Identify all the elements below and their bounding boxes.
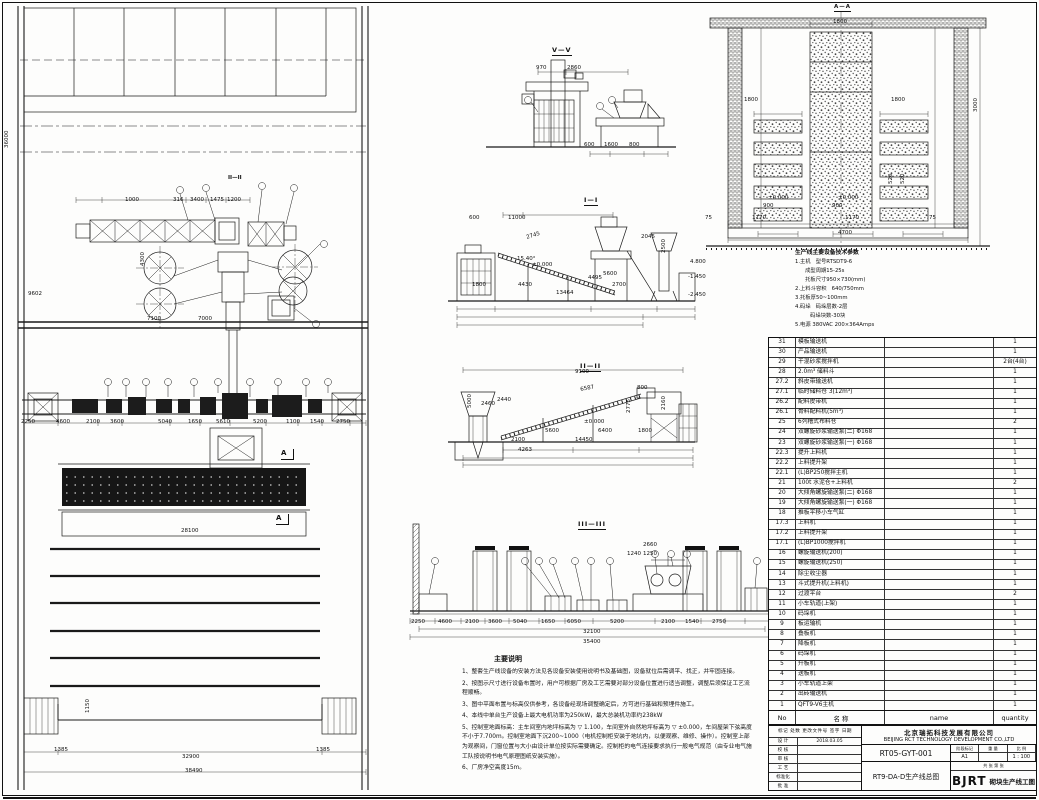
dim-label: 75 bbox=[929, 216, 936, 222]
revision-row: 审 核 bbox=[769, 755, 861, 764]
part-name: 双螺旋砂浆输送泵(一) Φ168 bbox=[796, 439, 885, 448]
part-qty: 1 bbox=[994, 671, 1036, 680]
dim-label: 6050 bbox=[567, 620, 581, 626]
dim-label: 520 bbox=[889, 174, 895, 185]
part-qty: 1 bbox=[994, 560, 1036, 569]
part-qty: 1 bbox=[994, 368, 1036, 377]
part-spec bbox=[885, 691, 994, 700]
part-no: 13 bbox=[769, 580, 796, 589]
dim-label: 900 bbox=[763, 204, 774, 210]
tech-param-line: 2.上料斗容积 640/750mm bbox=[795, 285, 945, 294]
part-no: 22.3 bbox=[769, 449, 796, 458]
part-no: 18 bbox=[769, 509, 796, 518]
part-name: 斗式提升机(上料机) bbox=[796, 580, 885, 589]
part-spec bbox=[885, 640, 994, 649]
part-qty: 1 bbox=[994, 509, 1036, 518]
part-spec bbox=[885, 348, 994, 357]
dim-label: 1385 bbox=[316, 748, 330, 754]
dim-label: 4495 bbox=[588, 276, 602, 282]
part-spec bbox=[885, 399, 994, 408]
table-row: 22.3 提升上料机 1 bbox=[769, 448, 1036, 458]
scale-label: 比 例 bbox=[1008, 745, 1036, 753]
dim-label: 2100 bbox=[86, 420, 100, 426]
table-row: 26.1 骨料配料机(5m³) 1 bbox=[769, 408, 1036, 418]
part-spec bbox=[885, 560, 994, 569]
part-name: 6列槽式布料仓 bbox=[796, 419, 885, 428]
dim-label: 3600 bbox=[110, 420, 124, 426]
dim-label: 2660 bbox=[643, 543, 657, 549]
table-row: 2 出砖输送机 1 bbox=[769, 690, 1036, 700]
table-row: 24 双螺旋砂浆输送泵(二) Φ168 1 bbox=[769, 428, 1036, 438]
part-name: 干混砂浆搅拌机 bbox=[796, 358, 885, 367]
table-row: 9 板运输机 1 bbox=[769, 619, 1036, 629]
tech-param-line: 成型周期15-25s bbox=[795, 267, 945, 276]
part-spec bbox=[885, 469, 994, 478]
part-name: 过渡平台 bbox=[796, 590, 885, 599]
part-no: 26.2 bbox=[769, 399, 796, 408]
dim-label: 14450 bbox=[575, 438, 593, 444]
part-qty: 1 bbox=[994, 530, 1036, 539]
dim-label: 1650 bbox=[188, 420, 202, 426]
section-title-i: I—I bbox=[584, 196, 598, 206]
engineering-drawing-sheet: { "sections": { "s5": "V—V", "s1": "I—I"… bbox=[0, 0, 1039, 800]
revision-rows: 设 计 2018.03.05 校 核 审 核 工 艺 bbox=[769, 738, 861, 791]
part-no: 31 bbox=[769, 338, 796, 347]
dim-label: 7000 bbox=[198, 317, 212, 323]
part-spec bbox=[885, 570, 994, 579]
section-ii-lower-drawing bbox=[443, 356, 701, 474]
part-qty: 1 bbox=[994, 600, 1036, 609]
part-spec bbox=[885, 459, 994, 468]
dim-label: 1540 bbox=[685, 620, 699, 626]
dim-label: 5200 bbox=[253, 420, 267, 426]
dim-label: 1170 bbox=[752, 216, 766, 222]
part-name: 小车轨道上架 bbox=[796, 681, 885, 690]
part-no: 8 bbox=[769, 630, 796, 639]
part-qty: 1 bbox=[994, 520, 1036, 529]
part-name: 2.0m³ 储料斗 bbox=[796, 368, 885, 377]
part-name: 码垛机 bbox=[796, 610, 885, 619]
part-no: 7 bbox=[769, 640, 796, 649]
dim-label: 2250 bbox=[411, 620, 425, 626]
tech-param-line: 码垛块数-30块 bbox=[795, 312, 945, 321]
part-no: 30 bbox=[769, 348, 796, 357]
parts-list-table: 1 QFT9-V6主机 1 2 出砖输送机 1 3 小车轨道上架 1 4 bbox=[768, 337, 1037, 725]
revision-table: 标记 处数 更改文件号 签字 日期 设 计 2018.03.05 校 核 审 核 bbox=[769, 726, 862, 790]
part-qty: 1 bbox=[994, 389, 1036, 398]
revision-label: 标准化 bbox=[769, 773, 798, 781]
tech-param-line: 托板尺寸950×730(mm) bbox=[795, 276, 945, 285]
header-no: No bbox=[769, 711, 796, 724]
dim-label: 36000 bbox=[5, 131, 11, 149]
dim-label: 2045 bbox=[641, 235, 655, 241]
revision-label: 工 艺 bbox=[769, 764, 798, 772]
dim-label: 32900 bbox=[182, 755, 200, 761]
table-row: 28 2.0m³ 储料斗 1 bbox=[769, 367, 1036, 377]
part-spec bbox=[885, 499, 994, 508]
part-name: 上料提升架 bbox=[796, 530, 885, 539]
dim-label: ±0.000 bbox=[584, 420, 604, 426]
table-row: 26.2 配料皮带机 1 bbox=[769, 398, 1036, 408]
part-qty: 1 bbox=[994, 499, 1036, 508]
revision-label: 审 核 bbox=[769, 755, 798, 763]
table-row: 11 小车轨道(上架) 1 bbox=[769, 599, 1036, 609]
dim-label: 3400 bbox=[190, 198, 204, 204]
part-qty: 1 bbox=[994, 378, 1036, 387]
dim-label: 5600 bbox=[603, 272, 617, 278]
part-no: 14 bbox=[769, 570, 796, 579]
dim-label: 3600 bbox=[488, 620, 502, 626]
part-name: 降板机 bbox=[796, 640, 885, 649]
dim-label: 5610 bbox=[216, 420, 230, 426]
part-qty: 1 bbox=[994, 640, 1036, 649]
part-name: 出砖输送机 bbox=[796, 691, 885, 700]
table-row: 19 大倾角螺旋输送泵(一) Φ168 1 bbox=[769, 498, 1036, 508]
tech-param-line: 4.码垛 码垛层数-2层 bbox=[795, 303, 945, 312]
part-qty: 2台(4台) bbox=[994, 358, 1036, 367]
dim-label: 2100 bbox=[661, 620, 675, 626]
part-qty: 1 bbox=[994, 681, 1036, 690]
dim-label: 1170 bbox=[845, 216, 859, 222]
plan-view-drawing bbox=[10, 4, 380, 794]
part-no: 27.1 bbox=[769, 389, 796, 398]
part-spec bbox=[885, 600, 994, 609]
note-item: 1、整套生产线设备的安装方法见各设备安装使用说明书及基础图，设备就位后需调平、找… bbox=[462, 668, 754, 678]
section-ii-upper-drawing bbox=[443, 193, 701, 335]
dim-label: 4700 bbox=[838, 231, 852, 237]
part-name: 上料机 bbox=[796, 520, 885, 529]
header-name-cn: 名 称 bbox=[796, 711, 885, 724]
part-name: 大倾角螺旋输送泵(一) Φ168 bbox=[796, 499, 885, 508]
dim-label: 1200 bbox=[227, 198, 241, 204]
stage-label: 阶段标记 bbox=[951, 745, 979, 753]
scale-value: 1 : 100 bbox=[1008, 753, 1036, 761]
parts-list-header: No 名 称 name quantity bbox=[769, 710, 1036, 724]
table-row: 17.2 上料提升架 1 bbox=[769, 529, 1036, 539]
part-qty: 1 bbox=[994, 540, 1036, 549]
notes-list: 1、整套生产线设备的安装方法见各设备安装使用说明书及基础图，设备就位后需调平、找… bbox=[462, 668, 754, 774]
part-name: 100t 水泥仓+上料机 bbox=[796, 479, 885, 488]
part-name: 配料皮带机 bbox=[796, 399, 885, 408]
part-qty: 2 bbox=[994, 419, 1036, 428]
table-row: 4 送板机 1 bbox=[769, 670, 1036, 680]
part-no: 4 bbox=[769, 671, 796, 680]
part-spec bbox=[885, 580, 994, 589]
dim-label: 1800 bbox=[638, 429, 652, 435]
part-spec bbox=[885, 540, 994, 549]
part-qty: 1 bbox=[994, 580, 1036, 589]
part-qty: 1 bbox=[994, 620, 1036, 629]
part-name: 上料提升架 bbox=[796, 459, 885, 468]
part-name: 码垛机 bbox=[796, 651, 885, 660]
tech-param-line: 3.托板厚50~100mm bbox=[795, 294, 945, 303]
part-spec bbox=[885, 661, 994, 670]
company-cell: 北京瑞拓科技发展有限公司 BEIJING RCT TECHNOLOGY DEVE… bbox=[862, 726, 1036, 745]
dim-label: 520 bbox=[901, 174, 907, 185]
dim-label: 5600 bbox=[545, 429, 559, 435]
table-row: 29 干混砂浆搅拌机 2台(4台) bbox=[769, 357, 1036, 367]
part-name: QFT9-V6主机 bbox=[796, 701, 885, 710]
dim-label: 2100 bbox=[511, 438, 525, 444]
dim-label: 2100 bbox=[465, 620, 479, 626]
dim-label: 13464 bbox=[556, 291, 574, 297]
revision-row: 设 计 2018.03.05 bbox=[769, 738, 861, 747]
part-spec bbox=[885, 358, 994, 367]
part-name: (L)BP1000搅拌机 bbox=[796, 540, 885, 549]
table-row: 7 降板机 1 bbox=[769, 639, 1036, 649]
part-no: 24 bbox=[769, 429, 796, 438]
part-no: 6 bbox=[769, 651, 796, 660]
part-name: 螺旋输送机(200) bbox=[796, 550, 885, 559]
company-logo: BJRT bbox=[952, 774, 987, 788]
part-spec bbox=[885, 489, 994, 498]
part-qty: 1 bbox=[994, 439, 1036, 448]
table-row: 8 叠板机 1 bbox=[769, 629, 1036, 639]
part-spec bbox=[885, 368, 994, 377]
project-name: 砌块生产线工图 bbox=[990, 776, 1036, 786]
part-no: 22.1 bbox=[769, 469, 796, 478]
dim-label: 1800 bbox=[744, 98, 758, 104]
note-item: 6、厂房净空高度15m。 bbox=[462, 764, 754, 774]
dim-label: 2750 bbox=[336, 420, 350, 426]
table-row: 17.3 上料机 1 bbox=[769, 519, 1036, 529]
weight-label: 重 量 bbox=[979, 745, 1007, 753]
dim-label: ±0.000 bbox=[838, 196, 858, 202]
part-qty: 1 bbox=[994, 701, 1036, 710]
part-spec bbox=[885, 671, 994, 680]
plan-section-mark: II—II bbox=[228, 176, 242, 182]
dim-label: 1240 bbox=[627, 552, 641, 558]
revision-row: 标准化 bbox=[769, 773, 861, 782]
part-name: 送板机 bbox=[796, 671, 885, 680]
sheet-size: A1 bbox=[951, 753, 979, 761]
part-name: 骨料配料机(5m³) bbox=[796, 409, 885, 418]
dim-label: 1800 bbox=[472, 283, 486, 289]
dim-label: ±0.000 bbox=[532, 263, 552, 269]
drawing-title: RT9-DA-D生产线总图 bbox=[862, 762, 951, 790]
dim-label: 1800 bbox=[891, 98, 905, 104]
table-row: 5 升板机 1 bbox=[769, 660, 1036, 670]
part-no: 20 bbox=[769, 489, 796, 498]
notes-title: 主要说明 bbox=[494, 654, 754, 664]
part-qty: 1 bbox=[994, 691, 1036, 700]
dim-label: 2860 bbox=[567, 66, 581, 72]
part-no: 17.1 bbox=[769, 540, 796, 549]
dim-label: 1385 bbox=[54, 748, 68, 754]
dim-label: 4600 bbox=[56, 420, 70, 426]
part-no: 22.2 bbox=[769, 459, 796, 468]
part-spec bbox=[885, 419, 994, 428]
tech-params-list: 1.主机 型号RTSDT9-6 成型周期15-25s 托板尺寸950×730(m… bbox=[795, 258, 945, 330]
table-row: 31 模板输送机 1 bbox=[769, 338, 1036, 347]
part-no: 21 bbox=[769, 479, 796, 488]
dim-label: 1100 bbox=[286, 420, 300, 426]
note-item: 5、控制室地面标高：主车间室内地坪标高为 ▽ 1.100，车间室外自然地坪标高为… bbox=[462, 724, 754, 762]
part-spec bbox=[885, 681, 994, 690]
dim-label: 2775 bbox=[627, 399, 633, 413]
part-name: 双螺旋砂浆输送泵(二) Φ168 bbox=[796, 429, 885, 438]
dim-label: 32100 bbox=[583, 630, 601, 636]
table-row: 27.2 斜皮带输送机 1 bbox=[769, 377, 1036, 387]
table-row: 17.1 (L)BP1000搅拌机 1 bbox=[769, 539, 1036, 549]
weight-value bbox=[979, 753, 1007, 761]
part-name: 小车轨道(上架) bbox=[796, 600, 885, 609]
part-name: 临时储料仓 3(12m³) bbox=[796, 389, 885, 398]
part-qty: 1 bbox=[994, 570, 1036, 579]
title-block-right: 北京瑞拓科技发展有限公司 BEIJING RCT TECHNOLOGY DEVE… bbox=[862, 726, 1036, 790]
company-name-cn: 北京瑞拓科技发展有限公司 bbox=[862, 727, 1036, 737]
dim-label: 6400 bbox=[598, 429, 612, 435]
notes-block: 主要说明 1、整套生产线设备的安装方法见各设备安装使用说明书及基础图，设备就位后… bbox=[462, 654, 754, 776]
note-item: 4、本线中单台生产设备上最大电机功率为250kW，最大总装机功率约238kW bbox=[462, 712, 754, 722]
part-name: 板运输机 bbox=[796, 620, 885, 629]
part-spec bbox=[885, 429, 994, 438]
part-qty: 1 bbox=[994, 469, 1036, 478]
part-name: 斜皮带输送机 bbox=[796, 378, 885, 387]
part-qty: 2 bbox=[994, 590, 1036, 599]
dim-label: 3000 bbox=[974, 98, 980, 112]
dim-label: 11000 bbox=[508, 216, 526, 222]
dim-label: 1650 bbox=[541, 620, 555, 626]
dim-label: 28100 bbox=[181, 529, 199, 535]
table-row: 1 QFT9-V6主机 1 bbox=[769, 700, 1036, 710]
part-no: 1 bbox=[769, 701, 796, 710]
dim-label: ±0.000 bbox=[768, 196, 788, 202]
drawing-meta: 阶段标记 重 量 比 例 A1 1 : 100 bbox=[951, 745, 1036, 761]
part-no: 17.2 bbox=[769, 530, 796, 539]
part-qty: 1 bbox=[994, 610, 1036, 619]
part-no: 25 bbox=[769, 419, 796, 428]
revision-row: 工 艺 bbox=[769, 764, 861, 773]
section-title-vv: V—V bbox=[552, 46, 572, 56]
dim-label: 1600 bbox=[604, 143, 618, 149]
part-no: 5 bbox=[769, 661, 796, 670]
part-qty: 1 bbox=[994, 550, 1036, 559]
part-spec bbox=[885, 651, 994, 660]
part-qty: 1 bbox=[994, 348, 1036, 357]
table-row: 27.1 临时储料仓 3(12m³) 1 bbox=[769, 388, 1036, 398]
dim-label: 2160 bbox=[662, 396, 668, 410]
sheet-count: 共 张 第 张 bbox=[951, 762, 1036, 771]
dim-label: 800 bbox=[637, 386, 648, 392]
part-spec bbox=[885, 590, 994, 599]
dim-label: 9100 bbox=[575, 370, 589, 376]
dim-label: 4600 bbox=[438, 620, 452, 626]
part-spec bbox=[885, 520, 994, 529]
part-qty: 2 bbox=[994, 479, 1036, 488]
part-no: 15 bbox=[769, 560, 796, 569]
drawing-number: RT05-GYT-001 bbox=[862, 745, 951, 761]
title-block: 标记 处数 更改文件号 签字 日期 设 计 2018.03.05 校 核 审 核 bbox=[768, 725, 1037, 791]
part-qty: 1 bbox=[994, 409, 1036, 418]
dim-label: 1000 bbox=[125, 198, 139, 204]
part-name: 产品输送机 bbox=[796, 348, 885, 357]
part-spec bbox=[885, 389, 994, 398]
revision-label: 批 准 bbox=[769, 782, 798, 790]
dim-label: 7100 bbox=[147, 317, 161, 323]
part-qty: 1 bbox=[994, 429, 1036, 438]
detail-mark-a2: A bbox=[276, 514, 289, 525]
dim-label: 600 bbox=[469, 216, 480, 222]
part-name: 升板机 bbox=[796, 661, 885, 670]
dim-label: 5040 bbox=[158, 420, 172, 426]
part-no: 3 bbox=[769, 681, 796, 690]
dim-label: -2.450 bbox=[688, 293, 706, 299]
dim-label: 4430 bbox=[518, 283, 532, 289]
revision-header: 标记 处数 更改文件号 签字 日期 bbox=[769, 726, 861, 738]
dim-label: -1.450 bbox=[688, 275, 706, 281]
part-no: 28 bbox=[769, 368, 796, 377]
part-qty: 1 bbox=[994, 449, 1036, 458]
dim-label: 970 bbox=[536, 66, 547, 72]
part-spec bbox=[885, 630, 994, 639]
part-spec bbox=[885, 378, 994, 387]
note-item: 2、按图示尺寸进行设备布置时，用户可根据厂房及工艺需要对部分设备位置进行适当调整… bbox=[462, 680, 754, 699]
part-qty: 1 bbox=[994, 651, 1036, 660]
header-name-en: name bbox=[885, 711, 994, 724]
dim-label: 2440 bbox=[497, 398, 511, 404]
tech-params-title: 生产线主要设备技术参数 bbox=[795, 247, 945, 256]
dim-label: 38490 bbox=[185, 769, 203, 775]
revision-value: 2018.03.05 bbox=[798, 739, 861, 744]
dim-label: 4300 bbox=[141, 252, 147, 266]
part-no: 12 bbox=[769, 590, 796, 599]
dim-label: 900 bbox=[832, 204, 843, 210]
dim-label: 2700 bbox=[612, 283, 626, 289]
part-no: 2 bbox=[769, 691, 796, 700]
table-row: 21 100t 水泥仓+上料机 2 bbox=[769, 478, 1036, 488]
dim-label: 5000 bbox=[468, 394, 474, 408]
section-title-iii: III—III bbox=[578, 520, 606, 530]
part-name: 大倾角螺旋输送泵(二) Φ168 bbox=[796, 489, 885, 498]
part-no: 17.3 bbox=[769, 520, 796, 529]
part-spec bbox=[885, 409, 994, 418]
table-row: 6 码垛机 1 bbox=[769, 650, 1036, 660]
revision-label: 校 核 bbox=[769, 746, 798, 754]
dim-label: 35400 bbox=[583, 640, 601, 646]
part-name: 叠板机 bbox=[796, 630, 885, 639]
part-qty: 1 bbox=[994, 338, 1036, 347]
dim-label: 2460 bbox=[481, 402, 495, 408]
dim-label: 2250 bbox=[21, 420, 35, 426]
table-row: 23 双螺旋砂浆输送泵(一) Φ168 1 bbox=[769, 438, 1036, 448]
revision-row: 批 准 bbox=[769, 782, 861, 790]
dim-label: 75 bbox=[705, 216, 712, 222]
company-name-en: BEIJING RCT TECHNOLOGY DEVELOPMENT CO.,L… bbox=[862, 737, 1036, 743]
part-name: (L)BP250搅拌主机 bbox=[796, 469, 885, 478]
revision-row: 校 核 bbox=[769, 746, 861, 755]
part-no: 27.2 bbox=[769, 378, 796, 387]
dim-label: 4263 bbox=[518, 448, 532, 454]
table-row: 22.2 上料提升架 1 bbox=[769, 458, 1036, 468]
table-row: 22.1 (L)BP250搅拌主机 1 bbox=[769, 468, 1036, 478]
dim-label: 4.800 bbox=[690, 260, 706, 266]
dim-label: 316 bbox=[173, 198, 184, 204]
dim-label: 9602 bbox=[28, 292, 42, 298]
part-spec bbox=[885, 439, 994, 448]
dim-label: 600 bbox=[584, 143, 595, 149]
part-no: 16 bbox=[769, 550, 796, 559]
part-spec bbox=[885, 701, 994, 710]
part-no: 10 bbox=[769, 610, 796, 619]
tech-params-block: 生产线主要设备技术参数 1.主机 型号RTSDT9-6 成型周期15-25s 托… bbox=[795, 247, 945, 330]
table-row: 15 螺旋输送机(250) 1 bbox=[769, 559, 1036, 569]
part-spec bbox=[885, 449, 994, 458]
dim-label: 1150 bbox=[86, 699, 92, 713]
dim-label: 2750 bbox=[712, 620, 726, 626]
tech-param-line: 1.主机 型号RTSDT9-6 bbox=[795, 258, 945, 267]
part-qty: 1 bbox=[994, 399, 1036, 408]
